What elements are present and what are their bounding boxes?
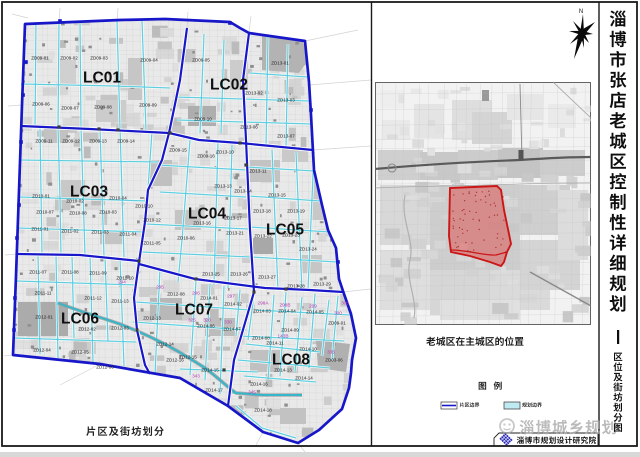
svg-text:ZD14-16: ZD14-16 (250, 382, 268, 387)
svg-text:ZD09-11: ZD09-11 (35, 139, 53, 144)
svg-text:ZD09-10: ZD09-10 (194, 117, 212, 122)
svg-text:ZD09-09: ZD09-09 (139, 103, 157, 108)
svg-text:320: 320 (203, 318, 211, 323)
svg-text:ZD12-04: ZD12-04 (33, 348, 51, 353)
svg-text:N: N (579, 9, 583, 15)
svg-text:ZD11-13: ZD11-13 (111, 299, 129, 304)
svg-text:343: 343 (192, 374, 200, 379)
svg-text:ZD09-03: ZD09-03 (90, 56, 108, 61)
svg-text:ZD10-10: ZD10-10 (135, 204, 153, 209)
svg-text:ZD09-07: ZD09-07 (61, 106, 79, 111)
svg-text:ZD14-18: ZD14-18 (254, 408, 272, 413)
svg-text:ZD09-05: ZD09-05 (192, 58, 210, 63)
svg-text:ZD09-15: ZD09-15 (169, 148, 187, 153)
svg-text:ZD12-02: ZD12-02 (78, 327, 96, 332)
svg-text:ZD13-27: ZD13-27 (258, 275, 276, 280)
svg-text:ZD13-24: ZD13-24 (299, 247, 317, 252)
svg-text:ZD12-14: ZD12-14 (156, 342, 174, 347)
svg-text:ZD12-05: ZD12-05 (71, 350, 89, 355)
svg-text:ZD11-05: ZD11-05 (143, 241, 161, 246)
svg-text:ZD13-01: ZD13-01 (271, 61, 289, 66)
svg-text:ZD09-01: ZD09-01 (31, 56, 49, 61)
svg-text:298B: 298B (280, 303, 291, 308)
svg-text:143B: 143B (278, 334, 289, 339)
svg-text:ZD09-16: ZD09-16 (197, 154, 215, 159)
svg-text:ZD14-14: ZD14-14 (295, 376, 313, 381)
svg-text:LC01: LC01 (83, 70, 121, 87)
svg-text:ZD13-26: ZD13-26 (230, 272, 248, 277)
svg-text:ZD10-06: ZD10-06 (177, 236, 195, 241)
svg-text:ZD10-04: ZD10-04 (109, 196, 127, 201)
svg-text:ZD12-13: ZD12-13 (143, 316, 161, 321)
svg-text:ZD13-02: ZD13-02 (245, 91, 263, 96)
svg-text:ZD13-13: ZD13-13 (214, 184, 232, 189)
svg-text:ZD10-12: ZD10-12 (143, 218, 161, 223)
svg-text:ZD14-13: ZD14-13 (274, 368, 292, 373)
svg-text:ZD14-07: ZD14-07 (223, 327, 241, 332)
svg-text:ZD11-07: ZD11-07 (29, 270, 47, 275)
svg-text:ZD13-06: ZD13-06 (240, 125, 258, 130)
svg-text:ZD14-05: ZD14-05 (306, 310, 324, 315)
svg-text:335: 335 (327, 350, 335, 355)
svg-text:ZD14-02: ZD14-02 (224, 302, 242, 307)
svg-text:ZD11-09: ZD11-09 (89, 271, 107, 276)
svg-text:LC07: LC07 (175, 302, 213, 319)
svg-text:ZD13-25: ZD13-25 (202, 272, 220, 277)
svg-text:LC02: LC02 (210, 77, 248, 94)
svg-text:330: 330 (224, 320, 232, 325)
svg-text:ZD11-03: ZD11-03 (91, 230, 109, 235)
svg-text:325: 325 (188, 318, 196, 323)
svg-text:ZD14-09: ZD14-09 (281, 328, 299, 333)
svg-text:ZD03-06: ZD03-06 (325, 358, 343, 363)
svg-text:ZD13-28: ZD13-28 (287, 284, 305, 289)
svg-text:ZD09-13: ZD09-13 (89, 139, 107, 144)
svg-text:ZD09-01: ZD09-01 (328, 321, 346, 326)
svg-text:ZD13-10: ZD13-10 (216, 150, 234, 155)
svg-text:ZD13-19: ZD13-19 (287, 209, 305, 214)
svg-text:ZD14-10: ZD14-10 (299, 347, 317, 352)
svg-text:ZD14-03: ZD14-03 (253, 309, 271, 314)
svg-text:345: 345 (248, 390, 256, 395)
svg-text:ZD13-21: ZD13-21 (226, 231, 244, 236)
svg-text:ZD14-06: ZD14-06 (197, 324, 215, 329)
svg-text:ZD14-04: ZD14-04 (278, 309, 296, 314)
svg-text:308: 308 (341, 301, 349, 306)
svg-text:ZD11-08: ZD11-08 (61, 270, 79, 275)
svg-text:ZD11-12: ZD11-12 (84, 296, 102, 301)
svg-text:ZD14-11: ZD14-11 (266, 341, 284, 346)
svg-text:296: 296 (192, 291, 200, 296)
svg-text:ZD13-29: ZD13-29 (313, 282, 331, 287)
svg-text:ZD13-16: ZD13-16 (193, 221, 211, 226)
svg-text:ZD14-17: ZD14-17 (205, 388, 223, 393)
svg-text:300: 300 (334, 311, 342, 316)
svg-text:ZD13-22: ZD13-22 (254, 234, 272, 239)
svg-text:ZD09-08: ZD09-08 (94, 105, 112, 110)
svg-text:294: 294 (118, 280, 126, 285)
svg-text:ZD13-17: ZD13-17 (224, 216, 242, 221)
svg-text:ZD10-07: ZD10-07 (36, 210, 54, 215)
svg-text:ZD13-18: ZD13-18 (253, 209, 271, 214)
svg-text:ZD09-06: ZD09-06 (32, 102, 50, 107)
svg-text:ZD11-01: ZD11-01 (31, 227, 49, 232)
svg-text:299: 299 (309, 304, 317, 309)
svg-text:ZD12-01: ZD12-01 (35, 315, 53, 320)
svg-text:LC06: LC06 (61, 311, 99, 328)
svg-text:ZD13-15: ZD13-15 (268, 193, 286, 198)
svg-text:ZD12-16: ZD12-16 (166, 358, 184, 363)
svg-text:297: 297 (227, 294, 235, 299)
svg-text:ZD09-04: ZD09-04 (140, 58, 158, 63)
svg-text:ZD13-07: ZD13-07 (277, 134, 295, 139)
svg-text:ZD13-14: ZD13-14 (234, 189, 252, 194)
svg-text:ZD11-04: ZD11-04 (119, 232, 137, 237)
svg-text:ZD10-01: ZD10-01 (32, 194, 50, 199)
svg-text:ZD12-08: ZD12-08 (167, 292, 185, 297)
svg-text:ZD14-15: ZD14-15 (201, 368, 219, 373)
svg-text:ZD09-02: ZD09-02 (60, 56, 78, 61)
svg-text:ZD10-02: ZD10-02 (66, 199, 84, 204)
svg-text:LC08: LC08 (272, 352, 310, 369)
svg-text:ZD11-02: ZD11-02 (61, 229, 79, 234)
svg-text:ZD13-11: ZD13-11 (249, 169, 267, 174)
svg-text:295: 295 (156, 285, 164, 290)
svg-text:ZD12-03: ZD12-03 (111, 326, 129, 331)
svg-text:298A: 298A (258, 301, 270, 306)
svg-text:ZD10-08: ZD10-08 (69, 211, 87, 216)
svg-text:ZD14-01: ZD14-01 (200, 296, 218, 301)
svg-text:ZD11-11: ZD11-11 (35, 291, 52, 296)
svg-text:ZD09-14: ZD09-14 (117, 139, 135, 144)
svg-text:ZD10-03: ZD10-03 (99, 210, 117, 215)
svg-text:ZD13-03: ZD13-03 (277, 98, 295, 103)
svg-text:ZD09-12: ZD09-12 (62, 139, 80, 144)
svg-text:ZD13-23: ZD13-23 (282, 233, 300, 238)
svg-text:ZD12-06: ZD12-06 (96, 365, 114, 370)
